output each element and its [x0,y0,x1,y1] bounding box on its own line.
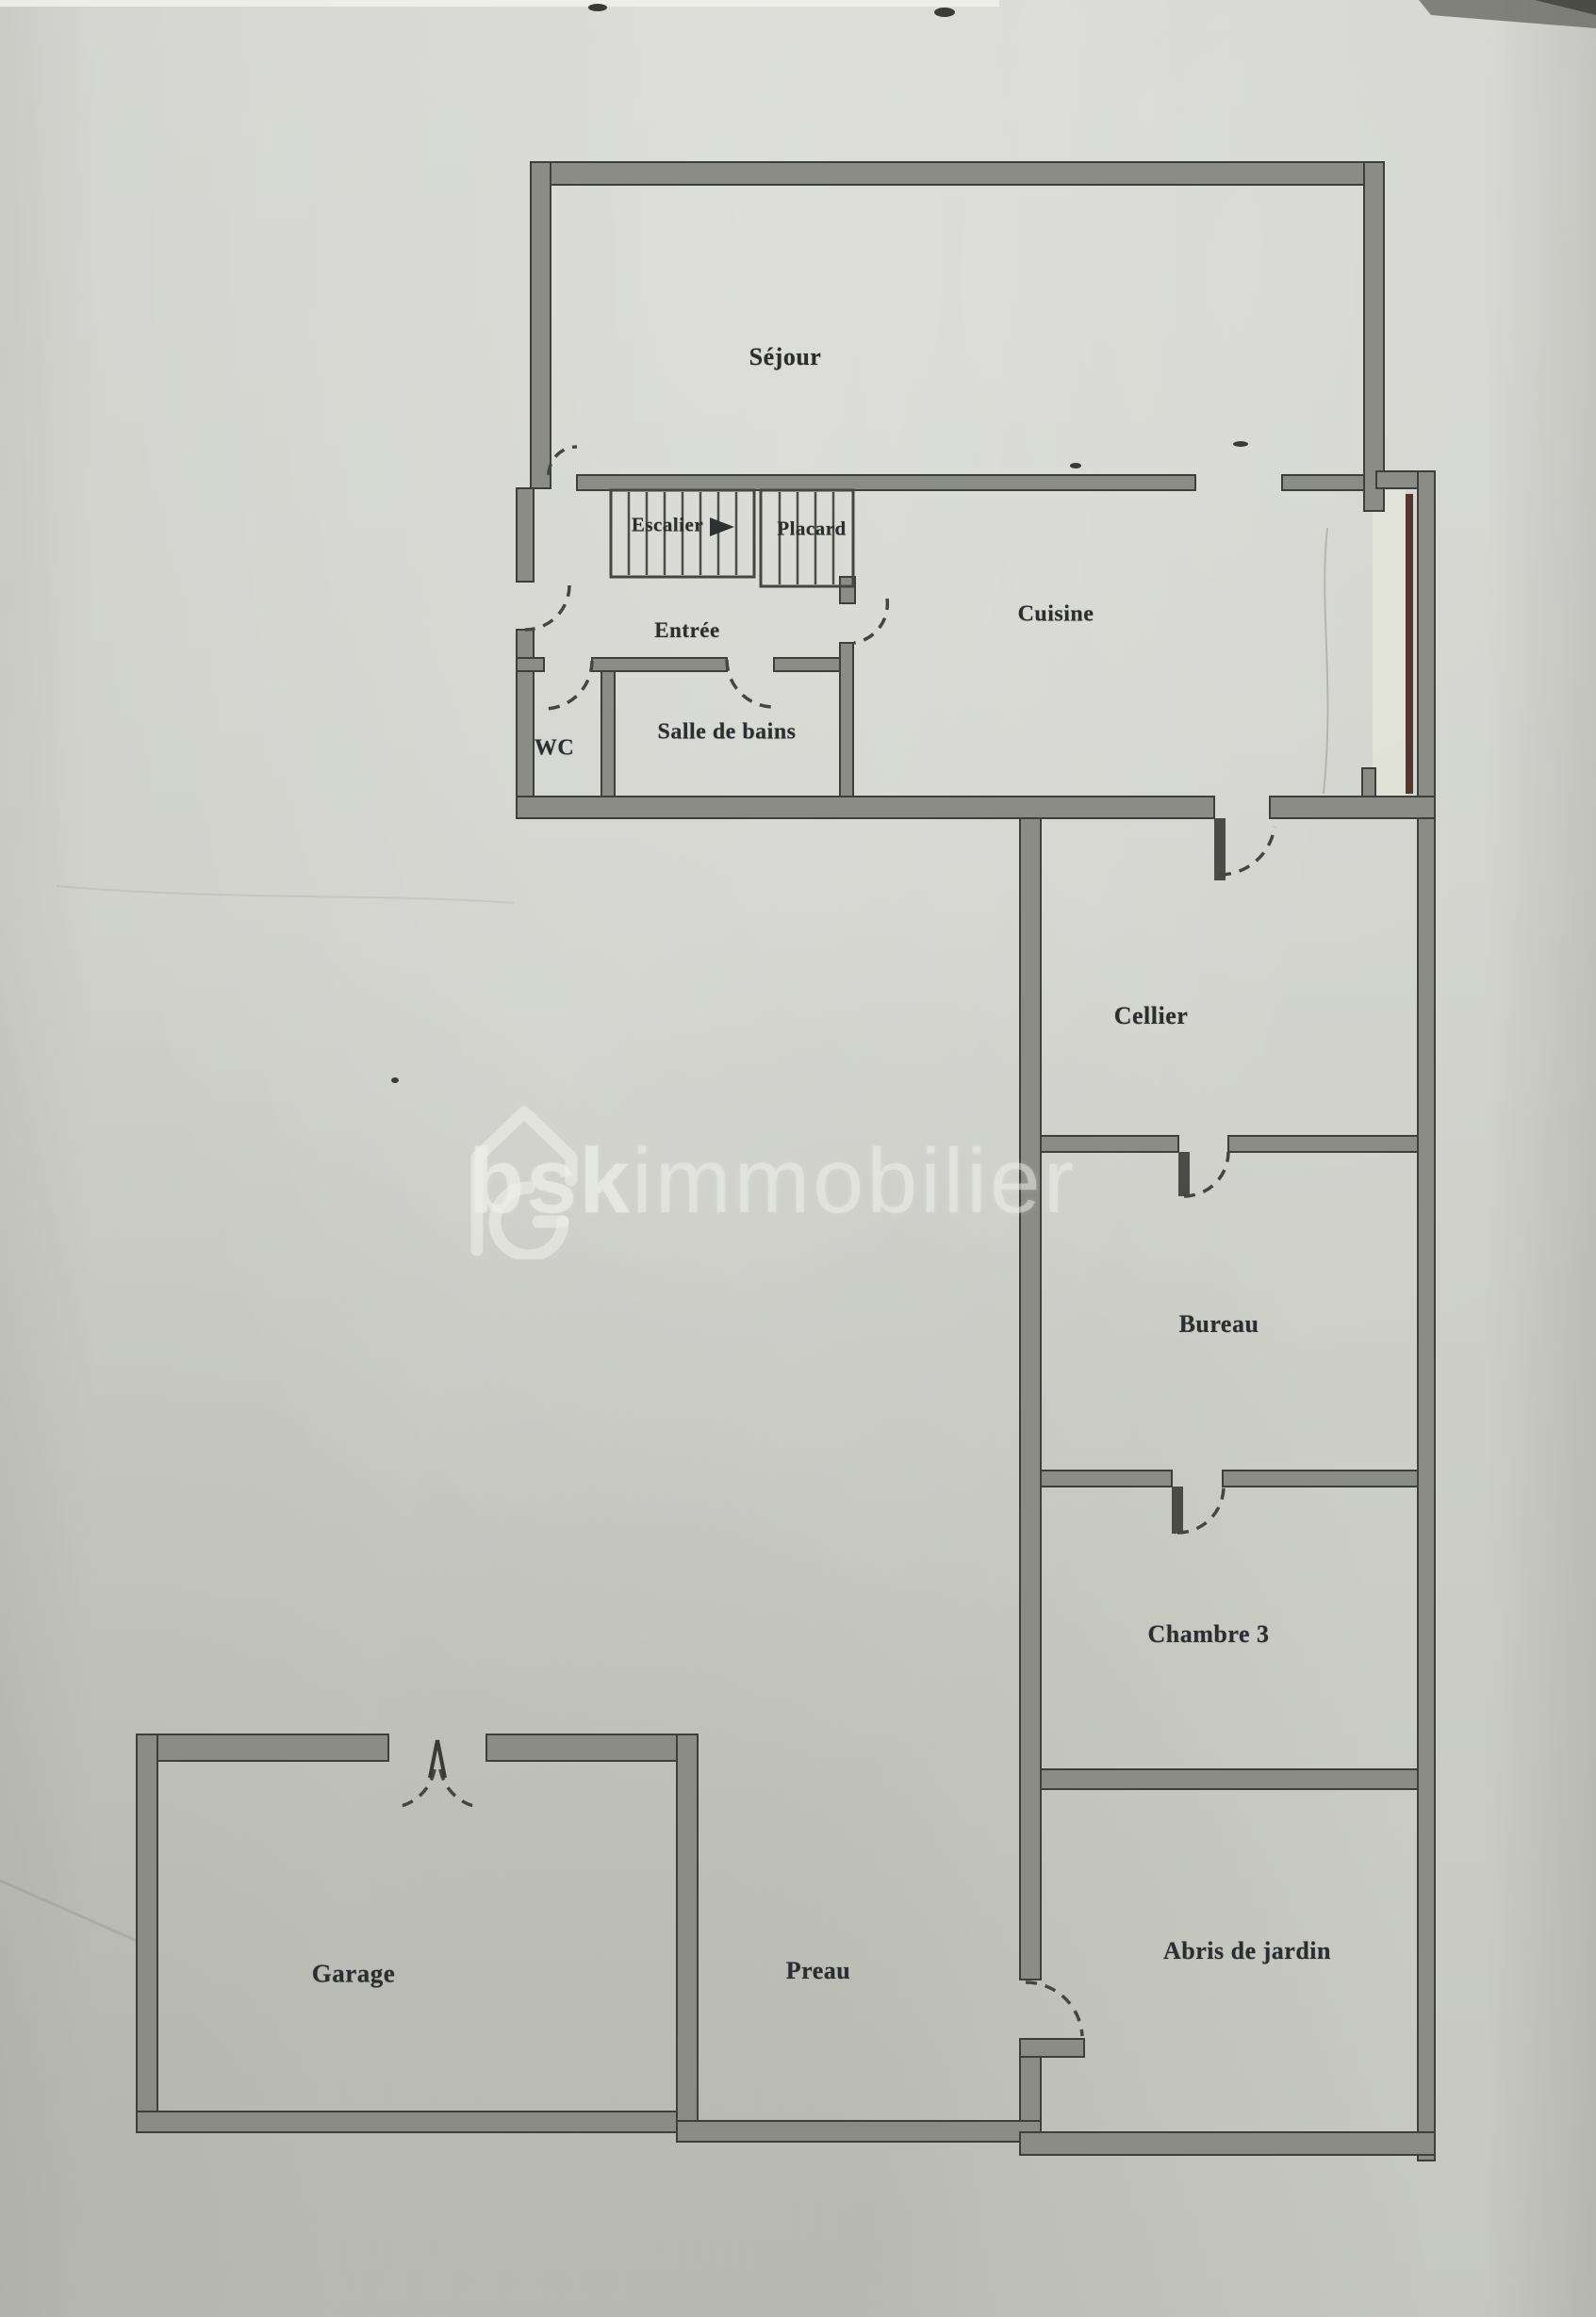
wall-segment [677,1734,698,2142]
doors [525,447,1275,2036]
wall-segment [137,2112,698,2132]
wall-segment [517,797,1214,818]
wall-segment [1041,1471,1172,1487]
wall-segment [1270,797,1435,818]
wall-segment [1223,1471,1418,1487]
door-arc [544,661,592,709]
wall-segment [1418,471,1435,2161]
room-label-cuisine: Cuisine [1018,602,1094,628]
door-arc [1220,827,1275,875]
room-label-preau: Preau [786,1957,850,1985]
door-arc [1184,1152,1228,1196]
wall-segment [517,630,534,797]
wall-segment [1364,162,1384,511]
wall-segment [1228,1136,1418,1152]
wall-segment [531,162,551,488]
wall-segment [486,1734,698,1761]
room-label-wc: WC [535,736,574,762]
wall-segment [1020,818,1041,1980]
door-leaf [1178,1152,1190,1196]
wall-segment [1020,2039,1084,2057]
wall-segment [517,658,544,671]
wall-segment [840,643,853,797]
door-arc [727,660,774,707]
scanned-floor-plan-photo: Séjour Escalier Placard Entrée Cuisine W… [0,0,1596,2317]
room-label-sejour: Séjour [749,343,822,371]
room-label-salle-de-bains: Salle de bains [657,720,796,746]
room-label-abris: Abris de jardin [1163,1937,1331,1965]
door-leaf [1214,818,1226,880]
wall-segment [137,1734,157,2132]
door-arc [1026,1982,1082,2036]
wall-segment [531,162,1384,185]
door-arc [525,585,569,630]
wall-segment [592,658,727,671]
room-label-cellier: Cellier [1114,1002,1189,1030]
wall-segment [1041,1769,1418,1789]
wall-segment [1020,2132,1435,2155]
door-leaf [1172,1487,1183,1534]
room-label-garage: Garage [312,1960,395,1989]
wall-segment [1282,475,1364,490]
window-glazing-line [1406,494,1413,794]
door-arc [1177,1487,1224,1533]
room-label-chambre3: Chambre 3 [1148,1620,1270,1649]
room-label-placard: Placard [777,518,846,541]
door-arc [549,447,577,475]
room-label-bureau: Bureau [1179,1310,1259,1339]
wall-segment [1041,1136,1178,1152]
wall-segment [677,2121,1041,2142]
window-bay [1373,490,1413,797]
room-label-entree: Entrée [654,618,719,643]
wall-segment [517,488,534,582]
wall-segment [774,658,840,671]
wall-segment [137,1734,388,1761]
door-arc [854,599,887,643]
garage-double-door [397,1740,478,1807]
paper-marks [0,0,1596,1944]
window-bay-light-band [1373,490,1406,797]
walls [137,162,1435,2161]
wall-segment [577,475,1195,490]
right-arrow-icon [710,518,734,536]
wall-segment [601,671,615,797]
room-label-escalier: Escalier [632,514,703,537]
